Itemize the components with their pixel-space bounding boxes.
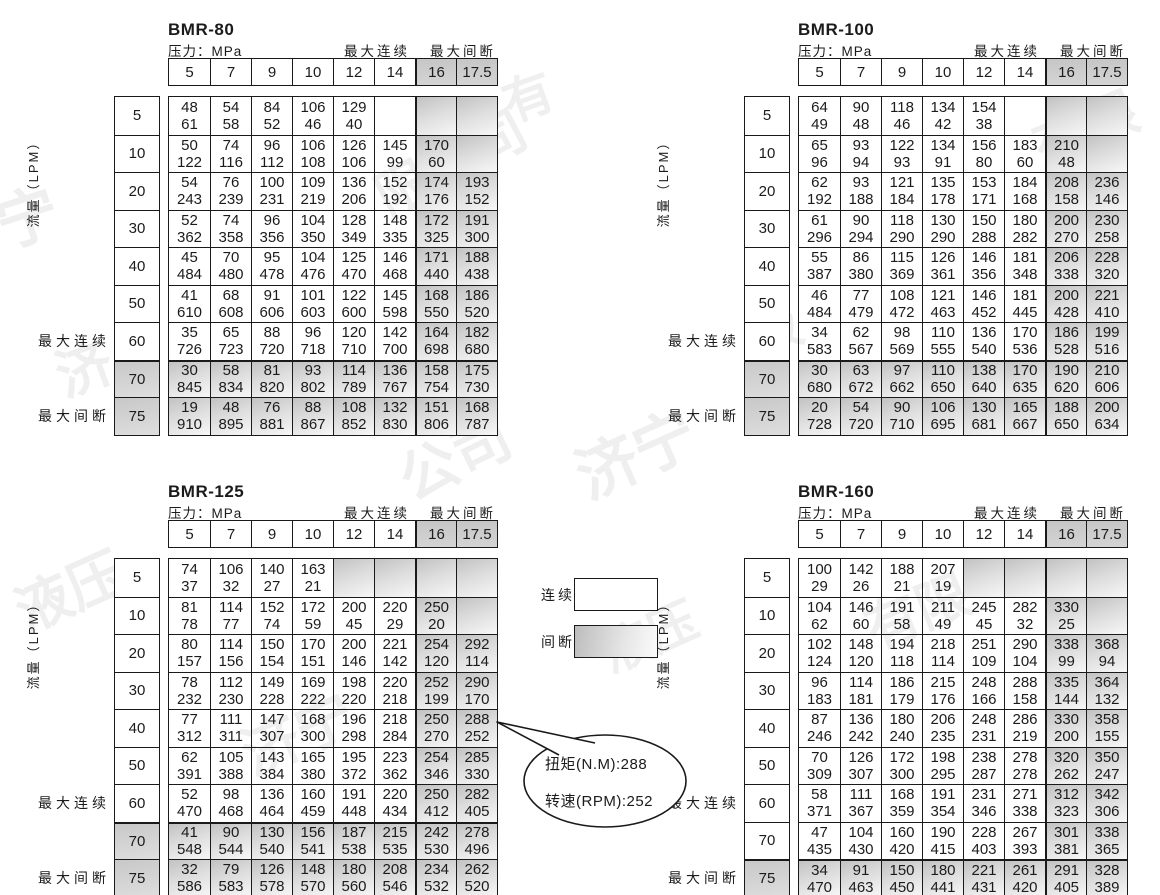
table-cell: 130540 bbox=[251, 822, 292, 860]
table-cell: 261420 bbox=[1004, 859, 1045, 895]
column-header: 7 bbox=[840, 59, 881, 85]
table-cell: 54243 bbox=[169, 172, 210, 210]
table-subheader: 压力：MPa 最大连续 最大间断 bbox=[798, 40, 1126, 57]
row-label: 30 bbox=[115, 672, 159, 710]
speed-value: 19 bbox=[935, 578, 952, 595]
torque-value: 121 bbox=[889, 174, 914, 191]
torque-value: 228 bbox=[1094, 249, 1119, 266]
torque-value: 90 bbox=[223, 824, 240, 841]
torque-value: 282 bbox=[1012, 599, 1037, 616]
table-cell: 236146 bbox=[1086, 172, 1127, 210]
table-cell: 200146 bbox=[333, 634, 374, 672]
torque-value: 142 bbox=[382, 324, 407, 341]
speed-value: 58 bbox=[894, 616, 911, 633]
torque-value: 207 bbox=[930, 561, 955, 578]
speed-value: 650 bbox=[930, 379, 955, 396]
table-cell: 6449 bbox=[799, 97, 840, 135]
torque-value: 100 bbox=[259, 174, 284, 191]
pressure-unit-label: 压力：MPa bbox=[168, 502, 242, 522]
speed-value: 176 bbox=[930, 691, 955, 708]
speed-value: 49 bbox=[935, 616, 952, 633]
row-label: 30 bbox=[115, 210, 159, 248]
speed-value: 312 bbox=[177, 728, 202, 745]
speed-value: 484 bbox=[177, 266, 202, 283]
table-cell: 218284 bbox=[374, 709, 415, 747]
speed-value: 46 bbox=[305, 116, 322, 133]
speed-value: 412 bbox=[424, 803, 449, 820]
speed-value: 555 bbox=[930, 341, 955, 358]
torque-value: 78 bbox=[181, 674, 198, 691]
row-label: 40 bbox=[745, 247, 789, 285]
torque-value: 102 bbox=[807, 636, 832, 653]
row-label: 70 bbox=[115, 822, 159, 860]
speed-value: 634 bbox=[1094, 416, 1119, 433]
table-cell: 251109 bbox=[963, 634, 1004, 672]
torque-value: 168 bbox=[424, 287, 449, 304]
column-header: 10 bbox=[292, 521, 333, 547]
table-cell: 41548 bbox=[169, 822, 210, 860]
speed-value: 371 bbox=[807, 803, 832, 820]
speed-value: 300 bbox=[464, 229, 489, 246]
speed-value: 62 bbox=[811, 616, 828, 633]
torque-value: 191 bbox=[930, 786, 955, 803]
torque-value: 91 bbox=[853, 862, 870, 879]
torque-value: 45 bbox=[181, 249, 198, 266]
speed-value: 325 bbox=[424, 229, 449, 246]
torque-value: 198 bbox=[930, 749, 955, 766]
column-header: 9 bbox=[251, 521, 292, 547]
table-cell: 132830 bbox=[374, 397, 415, 435]
table-cell: 96356 bbox=[251, 210, 292, 248]
torque-value: 262 bbox=[464, 861, 489, 878]
table-cell: 252199 bbox=[415, 672, 456, 710]
data-grid: 7437106321402716321817811477152741725920… bbox=[168, 558, 498, 895]
table-cell: 148570 bbox=[292, 859, 333, 895]
speed-value: 405 bbox=[1054, 879, 1079, 895]
speed-value: 356 bbox=[259, 229, 284, 246]
table-cell: 4861 bbox=[169, 97, 210, 135]
torque-value: 215 bbox=[930, 674, 955, 691]
speed-value: 262 bbox=[1054, 766, 1079, 783]
torque-value: 286 bbox=[1012, 711, 1037, 728]
table-cell: 70480 bbox=[210, 247, 251, 285]
torque-value: 210 bbox=[1054, 137, 1079, 154]
table-cell: 262520 bbox=[456, 859, 497, 895]
torque-value: 134 bbox=[930, 137, 955, 154]
torque-value: 160 bbox=[889, 824, 914, 841]
table-cell: 115369 bbox=[881, 247, 922, 285]
table-cell: 18821 bbox=[881, 559, 922, 597]
speed-value: 541 bbox=[300, 841, 325, 858]
data-grid: 6449904811846134421543865969394122931349… bbox=[798, 96, 1128, 436]
table-cell: 223362 bbox=[374, 747, 415, 785]
torque-value: 136 bbox=[259, 786, 284, 803]
speed-value: 420 bbox=[889, 841, 914, 858]
speed-value: 168 bbox=[1012, 191, 1037, 208]
table-cell: 55387 bbox=[799, 247, 840, 285]
torque-value: 288 bbox=[1012, 674, 1037, 691]
torque-value: 242 bbox=[424, 824, 449, 841]
torque-value: 328 bbox=[1094, 862, 1119, 879]
torque-value: 70 bbox=[223, 249, 240, 266]
torque-value: 32 bbox=[181, 861, 198, 878]
table-cell: 96112 bbox=[251, 135, 292, 173]
table-cell: 350247 bbox=[1086, 747, 1127, 785]
table-cell: 14599 bbox=[374, 135, 415, 173]
torque-value: 186 bbox=[464, 287, 489, 304]
torque-value: 330 bbox=[1054, 599, 1079, 616]
table-cell: 175730 bbox=[456, 360, 497, 398]
speed-value: 520 bbox=[464, 878, 489, 895]
torque-value: 193 bbox=[464, 174, 489, 191]
speed-value: 270 bbox=[1054, 229, 1079, 246]
torque-value: 200 bbox=[341, 636, 366, 653]
table-cell: 62192 bbox=[799, 172, 840, 210]
torque-value: 47 bbox=[811, 824, 828, 841]
torque-value: 138 bbox=[971, 362, 996, 379]
speed-value: 845 bbox=[177, 379, 202, 396]
torque-value: 211 bbox=[931, 599, 955, 616]
speed-value: 104 bbox=[1012, 653, 1037, 670]
row-label: 40 bbox=[115, 247, 159, 285]
table-cell: 174176 bbox=[415, 172, 456, 210]
speed-value: 723 bbox=[218, 341, 243, 358]
table-cell: 198220 bbox=[333, 672, 374, 710]
speed-value: 49 bbox=[811, 116, 828, 133]
torque-value: 58 bbox=[223, 362, 240, 379]
speed-value: 37 bbox=[181, 578, 198, 595]
speed-value: 309 bbox=[807, 766, 832, 783]
table-cell: 136206 bbox=[333, 172, 374, 210]
torque-value: 30 bbox=[181, 362, 198, 379]
table-cell: 126307 bbox=[840, 747, 881, 785]
torque-value: 88 bbox=[264, 324, 281, 341]
table-cell: 338365 bbox=[1086, 822, 1127, 860]
table-cell: 68608 bbox=[210, 285, 251, 323]
torque-value: 87 bbox=[811, 711, 828, 728]
table-cell bbox=[1004, 97, 1045, 135]
table-cell: 128349 bbox=[333, 210, 374, 248]
speed-value: 146 bbox=[341, 653, 366, 670]
speed-value: 231 bbox=[259, 191, 284, 208]
table-cell: 228403 bbox=[963, 822, 1004, 860]
row-label: 20 bbox=[745, 172, 789, 210]
torque-value: 165 bbox=[300, 749, 325, 766]
table-cell: 15438 bbox=[963, 97, 1004, 135]
table-cell: 15680 bbox=[963, 135, 1004, 173]
table-cell: 108472 bbox=[881, 285, 922, 323]
callout-text: 扭矩(N.M):288 转速(RPM):252 bbox=[545, 746, 653, 820]
row-label: 5 bbox=[745, 97, 789, 135]
speed-value: 520 bbox=[464, 304, 489, 321]
table-cell: 191300 bbox=[456, 210, 497, 248]
table-cell: 180560 bbox=[333, 859, 374, 895]
table-cell: 193152 bbox=[456, 172, 497, 210]
column-header: 9 bbox=[881, 521, 922, 547]
table-cell: 100231 bbox=[251, 172, 292, 210]
table-cell: 301381 bbox=[1045, 822, 1086, 860]
table-cell bbox=[1086, 597, 1127, 635]
torque-value: 200 bbox=[1094, 399, 1119, 416]
flow-axis-label: 流量（LPM） bbox=[23, 115, 41, 247]
torque-value: 191 bbox=[341, 786, 366, 803]
table-cell: 215176 bbox=[922, 672, 963, 710]
speed-value: 789 bbox=[341, 379, 366, 396]
speed-value: 476 bbox=[300, 266, 325, 283]
table-cell: 168787 bbox=[456, 397, 497, 435]
torque-value: 195 bbox=[341, 749, 366, 766]
speed-value: 94 bbox=[853, 154, 870, 171]
table-cell: 200634 bbox=[1086, 397, 1127, 435]
speed-value: 152 bbox=[464, 191, 489, 208]
torque-value: 180 bbox=[1012, 212, 1037, 229]
speed-value: 120 bbox=[848, 653, 873, 670]
torque-value: 267 bbox=[1012, 824, 1037, 841]
max-intermittent-label: 最大间断 bbox=[1060, 502, 1126, 522]
table-cell: 88867 bbox=[292, 397, 333, 435]
table-cell: 150154 bbox=[251, 634, 292, 672]
table-cell: 160420 bbox=[881, 822, 922, 860]
torque-value: 98 bbox=[894, 324, 911, 341]
table-cell: 45484 bbox=[169, 247, 210, 285]
table-cell: 48895 bbox=[210, 397, 251, 435]
torque-value: 65 bbox=[223, 324, 240, 341]
torque-value: 278 bbox=[1012, 749, 1037, 766]
table-cell bbox=[456, 559, 497, 597]
torque-value: 48 bbox=[181, 99, 198, 116]
max-continuous-label: 最大连续 bbox=[974, 502, 1040, 522]
table-cell: 108852 bbox=[333, 397, 374, 435]
speed-value: 806 bbox=[424, 416, 449, 433]
speed-value: 219 bbox=[1012, 728, 1037, 745]
flow-axis-label: 流量（LPM） bbox=[653, 115, 671, 247]
table-cell: 148120 bbox=[840, 634, 881, 672]
torque-value: 150 bbox=[971, 212, 996, 229]
speed-value: 178 bbox=[930, 191, 955, 208]
torque-value: 63 bbox=[853, 362, 870, 379]
column-header: 16 bbox=[1045, 521, 1086, 547]
speed-value: 350 bbox=[300, 229, 325, 246]
torque-value: 126 bbox=[259, 861, 284, 878]
speed-value: 662 bbox=[889, 379, 914, 396]
row-label: 10 bbox=[115, 135, 159, 173]
speed-value: 48 bbox=[1058, 154, 1075, 171]
table-cell: 170151 bbox=[292, 634, 333, 672]
speed-value: 199 bbox=[424, 691, 449, 708]
torque-value: 114 bbox=[849, 674, 873, 691]
table-cell: 290104 bbox=[1004, 634, 1045, 672]
torque-value: 148 bbox=[382, 212, 407, 229]
torque-value: 55 bbox=[811, 249, 828, 266]
speed-value: 282 bbox=[1012, 229, 1037, 246]
table-cell: 195372 bbox=[333, 747, 374, 785]
speed-value: 640 bbox=[971, 379, 996, 396]
speed-value: 183 bbox=[807, 691, 832, 708]
torque-value: 250 bbox=[424, 599, 449, 616]
speed-value: 415 bbox=[930, 841, 955, 858]
speed-value: 78 bbox=[181, 616, 198, 633]
table-cell: 191448 bbox=[333, 784, 374, 822]
table-cell: 188650 bbox=[1045, 397, 1086, 435]
row-label: 75 bbox=[745, 859, 789, 895]
row-label: 20 bbox=[115, 634, 159, 672]
torque-value: 200 bbox=[1054, 287, 1079, 304]
max-continuous-row-label: 最大连续 bbox=[30, 331, 110, 351]
torque-value: 188 bbox=[889, 561, 914, 578]
speed-value: 346 bbox=[424, 766, 449, 783]
torque-value: 190 bbox=[930, 824, 955, 841]
table-cell: 130290 bbox=[922, 210, 963, 248]
speed-value: 42 bbox=[935, 116, 952, 133]
callout-torque: 扭矩(N.M):288 bbox=[545, 746, 653, 783]
table-cell: 106695 bbox=[922, 397, 963, 435]
torque-value: 106 bbox=[300, 137, 325, 154]
table-cell: 200270 bbox=[1045, 210, 1086, 248]
row-label: 5 bbox=[115, 97, 159, 135]
torque-value: 65 bbox=[811, 137, 828, 154]
torque-value: 96 bbox=[811, 674, 828, 691]
torque-value: 364 bbox=[1094, 674, 1119, 691]
speed-value: 61 bbox=[181, 116, 198, 133]
table-cell: 114181 bbox=[840, 672, 881, 710]
table-bmr-125: BMR-125 压力：MPa 最大连续 最大间断 5791012141617.5… bbox=[0, 482, 505, 895]
table-cell: 19910 bbox=[169, 397, 210, 435]
table-cell: 191354 bbox=[922, 784, 963, 822]
speed-value: 459 bbox=[300, 803, 325, 820]
torque-value: 236 bbox=[1094, 174, 1119, 191]
table-cell: 221410 bbox=[1086, 285, 1127, 323]
torque-value: 320 bbox=[1054, 749, 1079, 766]
row-label: 50 bbox=[115, 747, 159, 785]
speed-value: 294 bbox=[848, 229, 873, 246]
speed-value: 157 bbox=[177, 653, 202, 670]
torque-value: 228 bbox=[971, 824, 996, 841]
torque-value: 118 bbox=[890, 99, 914, 116]
table-cell: 278278 bbox=[1004, 747, 1045, 785]
table-cell: 18360 bbox=[1004, 135, 1045, 173]
datasheet-page: 宁限公司有有限济液公司济宁液压液压有限济宁 BMR-80 压力：MPa 最大连续… bbox=[0, 0, 1160, 895]
table-cell: 150450 bbox=[881, 859, 922, 895]
table-cell: 28232 bbox=[1004, 597, 1045, 635]
torque-value: 182 bbox=[464, 324, 489, 341]
torque-value: 121 bbox=[930, 287, 955, 304]
speed-value: 410 bbox=[1094, 304, 1119, 321]
row-label: 60 bbox=[115, 784, 159, 822]
torque-value: 108 bbox=[341, 399, 366, 416]
torque-value: 19 bbox=[181, 399, 198, 416]
torque-value: 126 bbox=[930, 249, 955, 266]
torque-value: 234 bbox=[424, 861, 449, 878]
torque-value: 196 bbox=[341, 711, 366, 728]
speed-value: 546 bbox=[382, 878, 407, 895]
column-header: 17.5 bbox=[456, 521, 497, 547]
table-cell bbox=[333, 559, 374, 597]
table-cell: 41610 bbox=[169, 285, 210, 323]
torque-value: 172 bbox=[300, 599, 325, 616]
speed-value: 311 bbox=[219, 728, 243, 745]
torque-value: 96 bbox=[264, 137, 281, 154]
table-cell: 206338 bbox=[1045, 247, 1086, 285]
speed-value: 767 bbox=[382, 379, 407, 396]
torque-value: 140 bbox=[259, 561, 284, 578]
table-cell: 149228 bbox=[251, 672, 292, 710]
torque-value: 190 bbox=[1054, 362, 1079, 379]
data-grid: 1002914226188212071910462146601915821149… bbox=[798, 558, 1128, 895]
speed-value: 80 bbox=[976, 154, 993, 171]
row-label: 70 bbox=[115, 360, 159, 398]
table-cell bbox=[415, 97, 456, 135]
speed-value: 635 bbox=[1012, 379, 1037, 396]
torque-value: 198 bbox=[341, 674, 366, 691]
table-cell: 342306 bbox=[1086, 784, 1127, 822]
torque-value: 291 bbox=[1054, 862, 1079, 879]
speed-value: 610 bbox=[177, 304, 202, 321]
column-header: 10 bbox=[922, 59, 963, 85]
torque-value: 136 bbox=[971, 324, 996, 341]
speed-value: 243 bbox=[177, 191, 202, 208]
table-cell: 190620 bbox=[1045, 360, 1086, 398]
speed-value: 48 bbox=[853, 116, 870, 133]
speed-value: 380 bbox=[300, 766, 325, 783]
table-cell: 12293 bbox=[881, 135, 922, 173]
speed-value: 200 bbox=[1054, 728, 1079, 745]
table-cell: 52470 bbox=[169, 784, 210, 822]
speed-value: 192 bbox=[807, 191, 832, 208]
table-cell: 90544 bbox=[210, 822, 251, 860]
speed-value: 536 bbox=[1012, 341, 1037, 358]
torque-value: 110 bbox=[931, 362, 955, 379]
table-cell: 104350 bbox=[292, 210, 333, 248]
table-cell: 81820 bbox=[251, 360, 292, 398]
table-cell: 50122 bbox=[169, 135, 210, 173]
speed-value: 470 bbox=[341, 266, 366, 283]
table-cell: 35726 bbox=[169, 322, 210, 360]
torque-value: 93 bbox=[853, 174, 870, 191]
column-header: 17.5 bbox=[1086, 59, 1127, 85]
table-cell: 121463 bbox=[922, 285, 963, 323]
table-cell: 146356 bbox=[963, 247, 1004, 285]
speed-value: 431 bbox=[971, 879, 996, 895]
speed-value: 124 bbox=[807, 653, 832, 670]
legend-continuous-label: 连续 bbox=[541, 585, 575, 605]
table-cell: 126361 bbox=[922, 247, 963, 285]
column-header: 14 bbox=[374, 59, 415, 85]
table-cell: 7437 bbox=[169, 559, 210, 597]
speed-value: 156 bbox=[218, 653, 243, 670]
speed-value: 435 bbox=[807, 841, 832, 858]
speed-value: 323 bbox=[1054, 803, 1079, 820]
torque-value: 70 bbox=[811, 749, 828, 766]
speed-value: 307 bbox=[848, 766, 873, 783]
row-label: 75 bbox=[115, 859, 159, 895]
max-intermittent-label: 最大间断 bbox=[430, 502, 496, 522]
table-cell: 61296 bbox=[799, 210, 840, 248]
speed-value: 544 bbox=[218, 841, 243, 858]
column-header: 7 bbox=[840, 521, 881, 547]
torque-value: 95 bbox=[264, 249, 281, 266]
torque-value: 76 bbox=[223, 174, 240, 191]
pressure-unit-label: 压力：MPa bbox=[798, 502, 872, 522]
speed-value: 365 bbox=[1094, 841, 1119, 858]
torque-value: 261 bbox=[1012, 862, 1037, 879]
speed-value: 532 bbox=[424, 878, 449, 895]
speed-value: 40 bbox=[346, 116, 363, 133]
row-label: 50 bbox=[745, 747, 789, 785]
torque-value: 88 bbox=[305, 399, 322, 416]
speed-value: 787 bbox=[464, 416, 489, 433]
torque-value: 146 bbox=[848, 599, 873, 616]
speed-value: 698 bbox=[424, 341, 449, 358]
